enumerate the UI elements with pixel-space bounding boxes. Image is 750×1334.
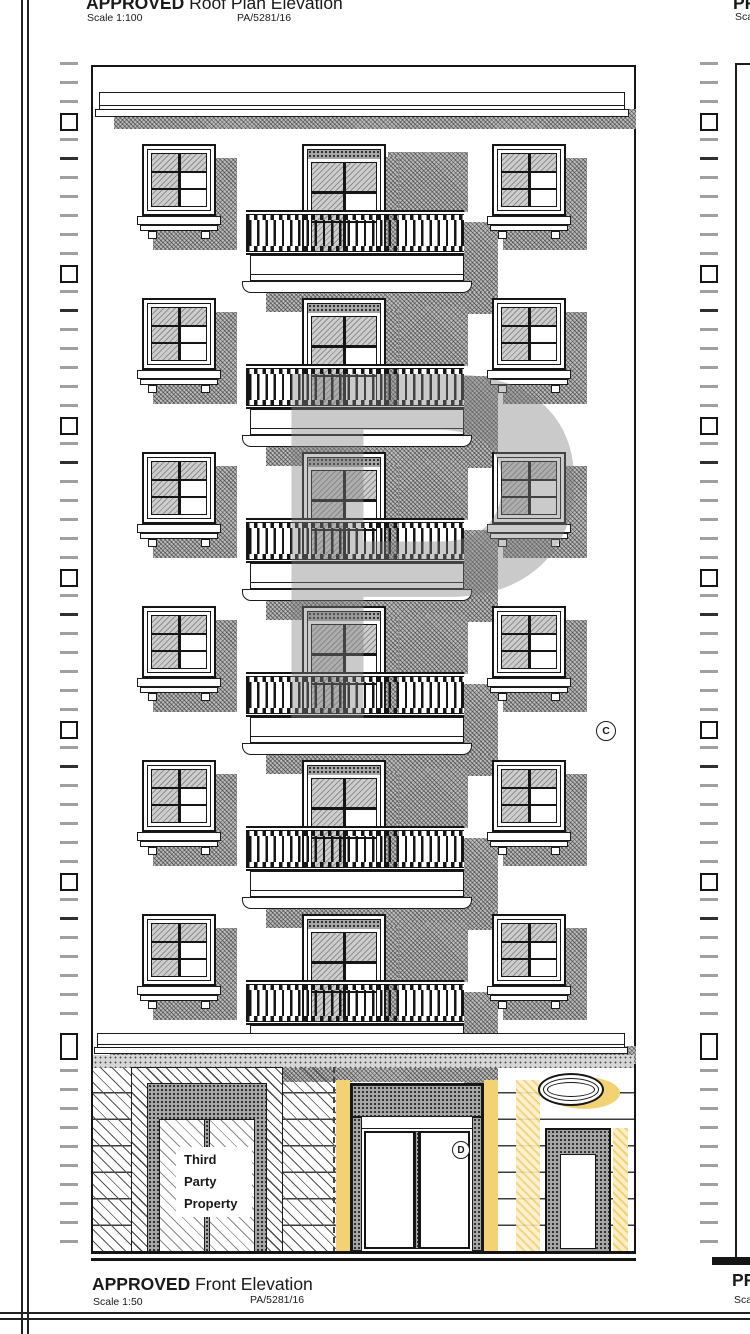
window-sill-right-5 <box>487 832 571 841</box>
glass-pane-hatch-topright <box>529 462 556 479</box>
scale-dash-1 <box>700 404 718 407</box>
glazing-mullion-vertical <box>528 924 531 976</box>
balcony-fascia <box>250 717 464 743</box>
glass-pane-hatch-left <box>152 308 179 360</box>
door-wall-shadow <box>388 306 468 366</box>
glazing-mullion-vertical <box>178 924 181 976</box>
window-sill-right-3 <box>487 524 571 533</box>
scale-dash-1 <box>700 233 718 236</box>
sill-bracket-right-right-3 <box>551 539 560 547</box>
door-head-band <box>308 612 380 621</box>
entrance-door-frame <box>545 1128 611 1253</box>
glass-pane-hatch-topright <box>179 616 206 633</box>
scale-dash-0 <box>60 328 78 331</box>
scale-dash-1 <box>700 366 718 369</box>
scale-dash-1 <box>700 556 718 559</box>
scale-dash-0 <box>60 936 78 939</box>
scale-dash-0 <box>60 518 78 521</box>
glazing-bar-2 <box>502 188 556 191</box>
scale-dash-0 <box>60 1069 78 1072</box>
cornice-lip <box>95 109 629 117</box>
scale-dash-0 <box>60 1012 78 1015</box>
scale-dash-1 <box>700 803 718 806</box>
cornice-profile-line <box>100 105 624 106</box>
sill-bracket-right-left-5 <box>201 847 210 855</box>
door-wall-shadow <box>388 922 468 982</box>
bottom-drawing-ref: PA/5281/16 <box>250 1294 304 1306</box>
adjacent-drawing-left-edge <box>735 63 737 1262</box>
glazing-bar-2 <box>152 804 206 807</box>
scale-dash-1 <box>700 1126 718 1129</box>
scale-dash-1 <box>700 784 718 787</box>
window-left-6 <box>142 914 216 986</box>
drawing-sheet: APPROVED Roof Plan Elevation Scale 1:100… <box>0 0 750 1334</box>
scale-dash-1 <box>700 993 718 996</box>
sill-bracket-right-right-2 <box>551 385 560 393</box>
bottom-drawing-scale: Scale 1:50 <box>93 1296 143 1308</box>
sill-bracket-left-right-5 <box>498 847 507 855</box>
scale-dash-0 <box>60 689 78 692</box>
scale-rect-0 <box>60 1033 78 1060</box>
window-left-5 <box>142 760 216 832</box>
sill-bracket-right-left-2 <box>201 385 210 393</box>
window-glazing <box>151 461 207 515</box>
glass-pane-hatch-topright <box>529 770 556 787</box>
glazing-mullion-vertical <box>528 308 531 360</box>
scale-dash-0 <box>60 537 78 540</box>
scale-dash-1 <box>700 100 718 103</box>
window-frame-mid <box>497 149 561 211</box>
scale-square-0-0 <box>60 113 78 131</box>
glass-pane-hatch-left <box>502 924 529 976</box>
balcony-balusters <box>246 990 464 1016</box>
scale-square-1-4 <box>700 721 718 739</box>
scale-dash-0 <box>60 1240 78 1243</box>
glazing-mullion-vertical <box>528 154 531 206</box>
entrance-door-panel <box>560 1154 596 1249</box>
scale-dash-1 <box>700 214 718 217</box>
glass-pane-hatch-topright <box>179 462 206 479</box>
scale-dash-1 <box>700 860 718 863</box>
scale-dash-1 <box>700 81 718 84</box>
glass-pane-hatch-topright <box>179 308 206 325</box>
door-wall-shadow <box>388 614 468 674</box>
scale-dash-0 <box>60 803 78 806</box>
sill-bracket-left-right-4 <box>498 693 507 701</box>
sill-bracket-right-right-6 <box>551 1001 560 1009</box>
glazing-bar-1 <box>312 653 376 656</box>
glass-pane-hatch-left <box>502 616 529 668</box>
scale-dash-1 <box>700 974 718 977</box>
scale-dash-0 <box>60 404 78 407</box>
glazing-mullion-vertical <box>178 770 181 822</box>
window-left-4 <box>142 606 216 678</box>
sill-bracket-right-left-6 <box>201 1001 210 1009</box>
top-right-drawing-scale: Sca <box>735 11 750 23</box>
scale-dash-0 <box>60 1183 78 1186</box>
string-course-profile-line <box>98 1044 624 1045</box>
scale-square-0-1 <box>60 265 78 283</box>
scale-dash-1 <box>700 442 718 445</box>
glass-pane-hatch-topright <box>179 154 206 171</box>
sill-bracket-left-left-1 <box>148 231 157 239</box>
window-glazing <box>501 153 557 207</box>
string-course-lip <box>94 1047 628 1054</box>
scale-dash-1 <box>700 746 718 749</box>
window-frame-mid <box>497 303 561 365</box>
glass-pane-hatch-topright <box>529 616 556 633</box>
window-glazing <box>151 615 207 669</box>
third-party-line3: Property <box>184 1193 252 1215</box>
scale-square-1-0 <box>700 113 718 131</box>
door-head-band <box>308 458 380 467</box>
scale-dash-0 <box>60 1088 78 1091</box>
scale-dash-0 <box>60 955 78 958</box>
entrance-door-pale-strip <box>613 1128 628 1253</box>
glass-pane-hatch-topright <box>344 779 376 808</box>
glazing-bar-2 <box>502 958 556 961</box>
window-sill-right-6 <box>487 986 571 995</box>
shopfront-frame <box>350 1083 484 1253</box>
scale-dash-0 <box>60 347 78 350</box>
scale-dash-0 <box>60 195 78 198</box>
glazing-bar-2 <box>502 342 556 345</box>
window-frame-mid <box>147 611 211 673</box>
sill-bracket-left-left-3 <box>148 539 157 547</box>
window-sill-left-6 <box>137 986 221 995</box>
scale-dash-1 <box>700 632 718 635</box>
glazing-mullion-vertical <box>528 770 531 822</box>
scale-dash-1 <box>700 537 718 540</box>
glazing-bar-1 <box>152 325 206 328</box>
scale-dash-1 <box>700 670 718 673</box>
third-party-line1: Third <box>184 1149 252 1171</box>
scale-rect-1 <box>700 1033 718 1060</box>
glass-pane-hatch-left <box>152 616 179 668</box>
scale-dash-1 <box>700 309 718 312</box>
sill-bracket-left-right-1 <box>498 231 507 239</box>
scale-dash-1 <box>700 708 718 711</box>
glazing-mullion-vertical <box>178 616 181 668</box>
scale-square-0-3 <box>60 569 78 587</box>
glazing-mullion-vertical <box>528 462 531 514</box>
scale-dash-1 <box>700 613 718 616</box>
glass-pane-hatch-left <box>502 308 529 360</box>
glazing-bar-1 <box>502 325 556 328</box>
shopfront-jamb-left <box>352 1117 362 1251</box>
scale-dash-1 <box>700 385 718 388</box>
glazing-bar-1 <box>152 633 206 636</box>
glazing-bar-1 <box>312 345 376 348</box>
scale-square-1-1 <box>700 265 718 283</box>
glazing-mullion-vertical <box>528 616 531 668</box>
scale-dash-0 <box>60 81 78 84</box>
scale-dash-1 <box>700 1164 718 1167</box>
window-right-4 <box>492 606 566 678</box>
window-frame-mid <box>497 611 561 673</box>
scale-dash-0 <box>60 594 78 597</box>
glass-pane-hatch-topright <box>344 471 376 500</box>
glass-pane-hatch-left <box>152 924 179 976</box>
glass-pane-hatch-topright <box>344 625 376 654</box>
scale-dash-0 <box>60 860 78 863</box>
window-sill-right-4 <box>487 678 571 687</box>
glass-pane-hatch-topright <box>529 154 556 171</box>
window-right-3 <box>492 452 566 524</box>
scale-dash-0 <box>60 214 78 217</box>
scale-dash-0 <box>60 499 78 502</box>
scale-dash-0 <box>60 176 78 179</box>
balcony-fascia <box>250 409 464 435</box>
window-right-1 <box>492 144 566 216</box>
boundary-dashed-line <box>333 1067 335 1253</box>
window-sill-left-2 <box>137 370 221 379</box>
scale-dash-1 <box>700 461 718 464</box>
door-head-band <box>308 766 380 775</box>
glazing-bar-1 <box>312 807 376 810</box>
sill-bracket-left-left-6 <box>148 1001 157 1009</box>
scale-dash-0 <box>60 746 78 749</box>
balcony-balusters <box>246 374 464 400</box>
window-left-2 <box>142 298 216 370</box>
scale-dash-0 <box>60 252 78 255</box>
scale-dash-0 <box>60 784 78 787</box>
scale-dash-1 <box>700 1183 718 1186</box>
window-glazing <box>151 153 207 207</box>
window-frame-mid <box>147 149 211 211</box>
scale-square-1-2 <box>700 417 718 435</box>
third-party-line2: Party <box>184 1171 252 1193</box>
window-frame-mid <box>147 765 211 827</box>
marker-d-letter: D <box>457 1145 464 1156</box>
glazing-bar-1 <box>502 787 556 790</box>
balcony-fascia-line <box>251 582 463 583</box>
scale-dash-1 <box>700 499 718 502</box>
sheet-border-left-outer <box>21 0 23 1334</box>
scale-dash-1 <box>700 1088 718 1091</box>
window-right-2 <box>492 298 566 370</box>
scale-dash-0 <box>60 157 78 160</box>
scale-dash-0 <box>60 100 78 103</box>
glazing-bar-2 <box>152 496 206 499</box>
scale-dash-0 <box>60 993 78 996</box>
bottom-title-name: Front Elevation <box>190 1274 313 1294</box>
balcony-balusters <box>246 528 464 554</box>
window-frame-mid <box>497 457 561 519</box>
window-right-5 <box>492 760 566 832</box>
scale-dash-1 <box>700 157 718 160</box>
sheet-border-bottom-inner <box>0 1318 750 1320</box>
glass-pane-hatch-left <box>502 770 529 822</box>
glazing-bar-2 <box>502 496 556 499</box>
sill-bracket-right-right-5 <box>551 847 560 855</box>
window-frame-mid <box>497 765 561 827</box>
glazing-bar-1 <box>312 961 376 964</box>
glazing-bar-1 <box>152 787 206 790</box>
glass-pane-hatch-topright <box>344 163 376 192</box>
bottom-right-drawing-title: PR <box>732 1270 750 1291</box>
marker-d: D <box>452 1141 470 1159</box>
window-frame-mid <box>497 919 561 981</box>
glass-pane-hatch-topright <box>179 924 206 941</box>
scale-dash-0 <box>60 765 78 768</box>
balcony-molding <box>242 897 472 909</box>
scale-dash-0 <box>60 1164 78 1167</box>
glass-pane-hatch-topright <box>344 317 376 346</box>
scale-dash-1 <box>700 328 718 331</box>
glazing-bar-1 <box>152 171 206 174</box>
scale-dash-1 <box>700 138 718 141</box>
balcony-fascia <box>250 563 464 589</box>
balcony-fascia-line <box>251 736 463 737</box>
scale-dash-1 <box>700 195 718 198</box>
window-glazing <box>151 769 207 823</box>
window-glazing <box>501 769 557 823</box>
sill-bracket-left-left-4 <box>148 693 157 701</box>
scale-dash-0 <box>60 556 78 559</box>
window-left-3 <box>142 452 216 524</box>
scale-dash-0 <box>60 1145 78 1148</box>
scale-dash-0 <box>60 651 78 654</box>
glass-pane-hatch-topright <box>179 770 206 787</box>
window-frame-mid <box>147 919 211 981</box>
shopfront-head-band <box>352 1085 482 1117</box>
scale-dash-1 <box>700 252 718 255</box>
scale-dash-0 <box>60 62 78 65</box>
scale-dash-1 <box>700 955 718 958</box>
glazing-mullion-vertical <box>178 154 181 206</box>
window-frame-mid <box>147 303 211 365</box>
top-drawing-ref: PA/5281/16 <box>237 12 291 24</box>
scale-dash-1 <box>700 651 718 654</box>
sheet-border-left-inner <box>27 0 29 1334</box>
scale-dash-0 <box>60 613 78 616</box>
balcony-balusters <box>246 220 464 246</box>
scale-dash-0 <box>60 1221 78 1224</box>
glazing-bar-1 <box>152 479 206 482</box>
window-sill-right-2 <box>487 370 571 379</box>
balcony-fascia <box>250 255 464 281</box>
sill-bracket-left-left-2 <box>148 385 157 393</box>
sill-bracket-left-left-5 <box>148 847 157 855</box>
glass-pane-hatch-left <box>152 154 179 206</box>
marker-c: C <box>596 721 616 741</box>
scale-square-0-5 <box>60 873 78 891</box>
balcony-balusters <box>246 836 464 862</box>
balcony-molding <box>242 743 472 755</box>
window-glazing <box>151 307 207 361</box>
scale-dash-1 <box>700 689 718 692</box>
glass-pane-hatch-left <box>152 770 179 822</box>
scale-dash-1 <box>700 917 718 920</box>
door-wall-shadow <box>388 460 468 520</box>
window-sill-left-3 <box>137 524 221 533</box>
glazing-bar-1 <box>502 171 556 174</box>
scale-dash-0 <box>60 1126 78 1129</box>
scale-dash-0 <box>60 841 78 844</box>
scale-dash-1 <box>700 936 718 939</box>
glass-pane-hatch-left <box>502 154 529 206</box>
oval-plaque <box>538 1073 604 1106</box>
scale-dash-1 <box>700 898 718 901</box>
scale-dash-0 <box>60 442 78 445</box>
scale-square-0-4 <box>60 721 78 739</box>
glazing-bar-2 <box>152 342 206 345</box>
glazing-bar-2 <box>502 804 556 807</box>
scale-dash-1 <box>700 1012 718 1015</box>
sill-bracket-right-left-3 <box>201 539 210 547</box>
scale-square-1-3 <box>700 569 718 587</box>
glazing-bar-2 <box>152 958 206 961</box>
shopfront-transom <box>352 1117 482 1129</box>
glazing-bar-1 <box>312 499 376 502</box>
scale-dash-0 <box>60 1202 78 1205</box>
scale-dash-1 <box>700 841 718 844</box>
door-head-band <box>308 150 380 159</box>
shopfront-jamb-right <box>472 1117 482 1251</box>
window-glazing <box>501 615 557 669</box>
scale-dash-1 <box>700 347 718 350</box>
scale-dash-1 <box>700 822 718 825</box>
scale-dash-0 <box>60 233 78 236</box>
balcony-fascia-line <box>251 428 463 429</box>
glazing-mullion-vertical <box>178 308 181 360</box>
glass-pane-hatch-left <box>152 462 179 514</box>
scale-dash-0 <box>60 898 78 901</box>
scale-dash-1 <box>700 765 718 768</box>
window-right-6 <box>492 914 566 986</box>
window-glazing <box>501 307 557 361</box>
door-wall-shadow <box>388 152 468 212</box>
glass-pane-hatch-topright <box>529 308 556 325</box>
oval-plaque-inner-ring <box>547 1082 595 1097</box>
glazing-bar-1 <box>312 191 376 194</box>
scale-dash-0 <box>60 917 78 920</box>
balcony-molding <box>242 589 472 601</box>
glass-pane-hatch-left <box>502 462 529 514</box>
window-sill-left-5 <box>137 832 221 841</box>
scale-dash-0 <box>60 708 78 711</box>
scale-square-1-5 <box>700 873 718 891</box>
top-drawing-scale: Scale 1:100 <box>87 12 142 24</box>
scale-dash-0 <box>60 822 78 825</box>
glazing-bar-1 <box>152 941 206 944</box>
balcony-molding <box>242 281 472 293</box>
scale-dash-1 <box>700 1107 718 1110</box>
door-wall-shadow <box>388 768 468 828</box>
sill-bracket-left-right-3 <box>498 539 507 547</box>
glazing-mullion-vertical <box>178 462 181 514</box>
balcony-fascia <box>250 871 464 897</box>
sill-bracket-left-right-6 <box>498 1001 507 1009</box>
scale-dash-0 <box>60 366 78 369</box>
scale-dash-0 <box>60 670 78 673</box>
scale-square-0-2 <box>60 417 78 435</box>
window-sill-left-1 <box>137 216 221 225</box>
scale-dash-1 <box>700 518 718 521</box>
shopfront-highlight-right <box>484 1080 498 1253</box>
window-left-1 <box>142 144 216 216</box>
window-frame-mid <box>147 457 211 519</box>
glazing-bar-2 <box>152 650 206 653</box>
shopfront-highlight-left <box>336 1080 350 1253</box>
adjacent-drawing-top-edge <box>735 63 750 65</box>
scale-dash-1 <box>700 1240 718 1243</box>
bottom-drawing-title: APPROVED Front Elevation <box>92 1274 313 1295</box>
scale-dash-0 <box>60 1107 78 1110</box>
scale-dash-0 <box>60 138 78 141</box>
scale-dash-1 <box>700 62 718 65</box>
